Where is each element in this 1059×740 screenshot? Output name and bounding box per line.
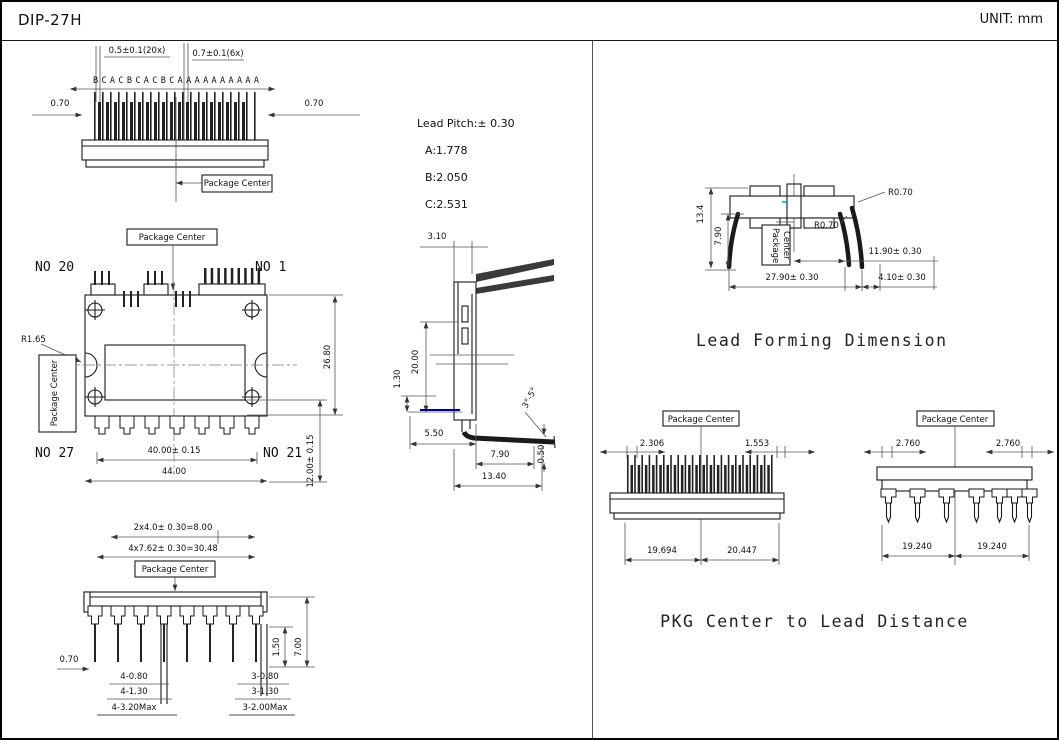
dim-body-height: 20.00 — [411, 350, 421, 374]
dim-standoff: 1.50 — [272, 638, 282, 657]
dim-pitch-6x: 0.7±0.1(6x) — [192, 49, 243, 59]
dim-leg-height: 7.90 — [714, 227, 724, 246]
title-separator — [2, 40, 1057, 41]
dim-quad-pitch: 4x7.62± 0.30=30.48 — [128, 544, 218, 554]
dim-standoff: 1.30 — [393, 370, 403, 389]
dim-pin-width: 0.70 — [60, 655, 79, 665]
pitch-right: 1.553 — [745, 439, 769, 449]
pitch-left: 2.306 — [640, 439, 664, 449]
dim-pair-pitch: 2x4.0± 0.30=8.00 — [134, 523, 213, 533]
pin-no-20: NO 20 — [35, 260, 74, 275]
package-center-line2: Center — [781, 231, 791, 260]
dist-right: 20.447 — [727, 546, 757, 556]
unit-label: UNIT: mm — [980, 12, 1043, 27]
dim-center-to-leg: 11.90± 0.30 — [868, 247, 921, 257]
package-center-label: Package Center — [922, 415, 989, 425]
row-3-200max: 3-2.00Max — [243, 703, 288, 713]
dim-left: 0.70 — [51, 99, 70, 109]
dim-outer-width: 44.00 — [162, 467, 186, 477]
dim-lead: 7.90 — [491, 450, 510, 460]
package-body — [82, 140, 268, 167]
dim-base: 5.50 — [425, 429, 444, 439]
dist-left: 19.694 — [647, 546, 677, 556]
front-view: Package Center NO 20 NO 1 NO 27 NO 21 — [7, 224, 367, 492]
pin-array — [887, 503, 1032, 522]
package-body — [877, 467, 1032, 491]
package-center-label: Package Center — [139, 233, 206, 243]
bottom-view: 2x4.0± 0.30=8.00 4x7.62± 0.30=30.48 Pack… — [57, 507, 402, 740]
row-4-080: 4-0.80 — [120, 672, 147, 682]
dim-pitch-20x: 0.5±0.1(20x) — [109, 46, 166, 56]
radius-top: R0.70 — [888, 188, 913, 198]
page-title: DIP-27H — [18, 11, 82, 29]
row-4-320max: 4-3.20Max — [112, 703, 157, 713]
package-body — [610, 493, 784, 519]
left-dim-rows: 4-0.80 4-1.30 4-3.20Max — [97, 672, 177, 715]
right-dim-rows: 3-0.80 3-1.30 3-2.00Max — [229, 672, 295, 715]
pkg-distance-title: PKG Center to Lead Distance — [642, 612, 987, 631]
row-4-130: 4-1.30 — [120, 687, 147, 697]
bent-leads-hatched — [476, 259, 554, 294]
lead-forming-title: Lead Forming Dimension — [696, 331, 948, 350]
dim-body-width: 27.90± 0.30 — [765, 273, 818, 283]
dim-total: 13.40 — [482, 472, 506, 482]
lead-pitch-title: Lead Pitch:± 0.30 — [417, 110, 515, 137]
dim-top-width: 3.10 — [428, 232, 447, 242]
tabs — [88, 606, 263, 624]
dist-left: 19.240 — [902, 542, 932, 552]
dist-right: 19.240 — [977, 542, 1007, 552]
body-cross-section — [454, 282, 476, 420]
lead-pitch-a: A:1.778 — [417, 137, 515, 164]
package-center-label: Package Center — [142, 565, 209, 575]
lead-pitch-table: Lead Pitch:± 0.30 A:1.778 B:2.050 C:2.53… — [417, 110, 515, 218]
bottom-feet — [95, 416, 259, 434]
pin-letter-row: B C A C B C A C B C A A A A A A A A A A — [93, 76, 259, 86]
pin-no-21: NO 21 — [263, 446, 302, 461]
pin-array — [627, 474, 774, 479]
package-center-label: Package Center — [204, 179, 271, 189]
top-pin-view: 0.5±0.1(20x) 0.7±0.1(6x) B C A C B C A C… — [30, 42, 370, 212]
dim-right: 0.70 — [305, 99, 324, 109]
pitch-left: 2.760 — [896, 439, 920, 449]
pin-no-27: NO 27 — [35, 446, 74, 461]
lead-pitch-c: C:2.531 — [417, 191, 515, 218]
package-center-label: Package Center — [668, 415, 735, 425]
side-view: 3.10 20.00 1.30 3°-5° — [392, 224, 597, 504]
angle-label: 3°-5° — [521, 386, 540, 410]
row-3-130: 3-1.30 — [251, 687, 278, 697]
dim-height: 13.4 — [696, 205, 706, 224]
dim-lower-height: 12.00± 0.15 — [306, 434, 316, 487]
radius-mid: R0.70 — [814, 221, 839, 231]
dim-inner-width: 40.00± 0.15 — [147, 446, 200, 456]
pkg-distance-right-view: Package Center 2.760 2.760 19.240 19.240 — [864, 405, 1059, 575]
dim-pin-length: 7.00 — [294, 638, 304, 657]
lead-pitch-b: B:2.050 — [417, 164, 515, 191]
lead-forming-view: 13.4 7.90 Package Center R0.70 R0.70 11.… — [692, 174, 1059, 366]
pitch-right: 2.760 — [996, 439, 1020, 449]
dim-height: 26.80 — [323, 345, 333, 369]
pkg-distance-left-view: Package Center 2.306 1.553 19.694 20.447 — [597, 405, 832, 575]
radius-label: R1.65 — [21, 335, 46, 345]
package-center-side-label: Package Center — [50, 359, 60, 426]
package-center-line1: Package — [770, 228, 780, 263]
dim-leg-offset: 4.10± 0.30 — [878, 273, 926, 283]
row-3-080: 3-0.80 — [251, 672, 278, 682]
pin-array — [94, 116, 256, 121]
drawing-sheet: DIP-27H UNIT: mm 0.5±0.1(20x) 0.7±0.1(6x… — [0, 0, 1059, 740]
